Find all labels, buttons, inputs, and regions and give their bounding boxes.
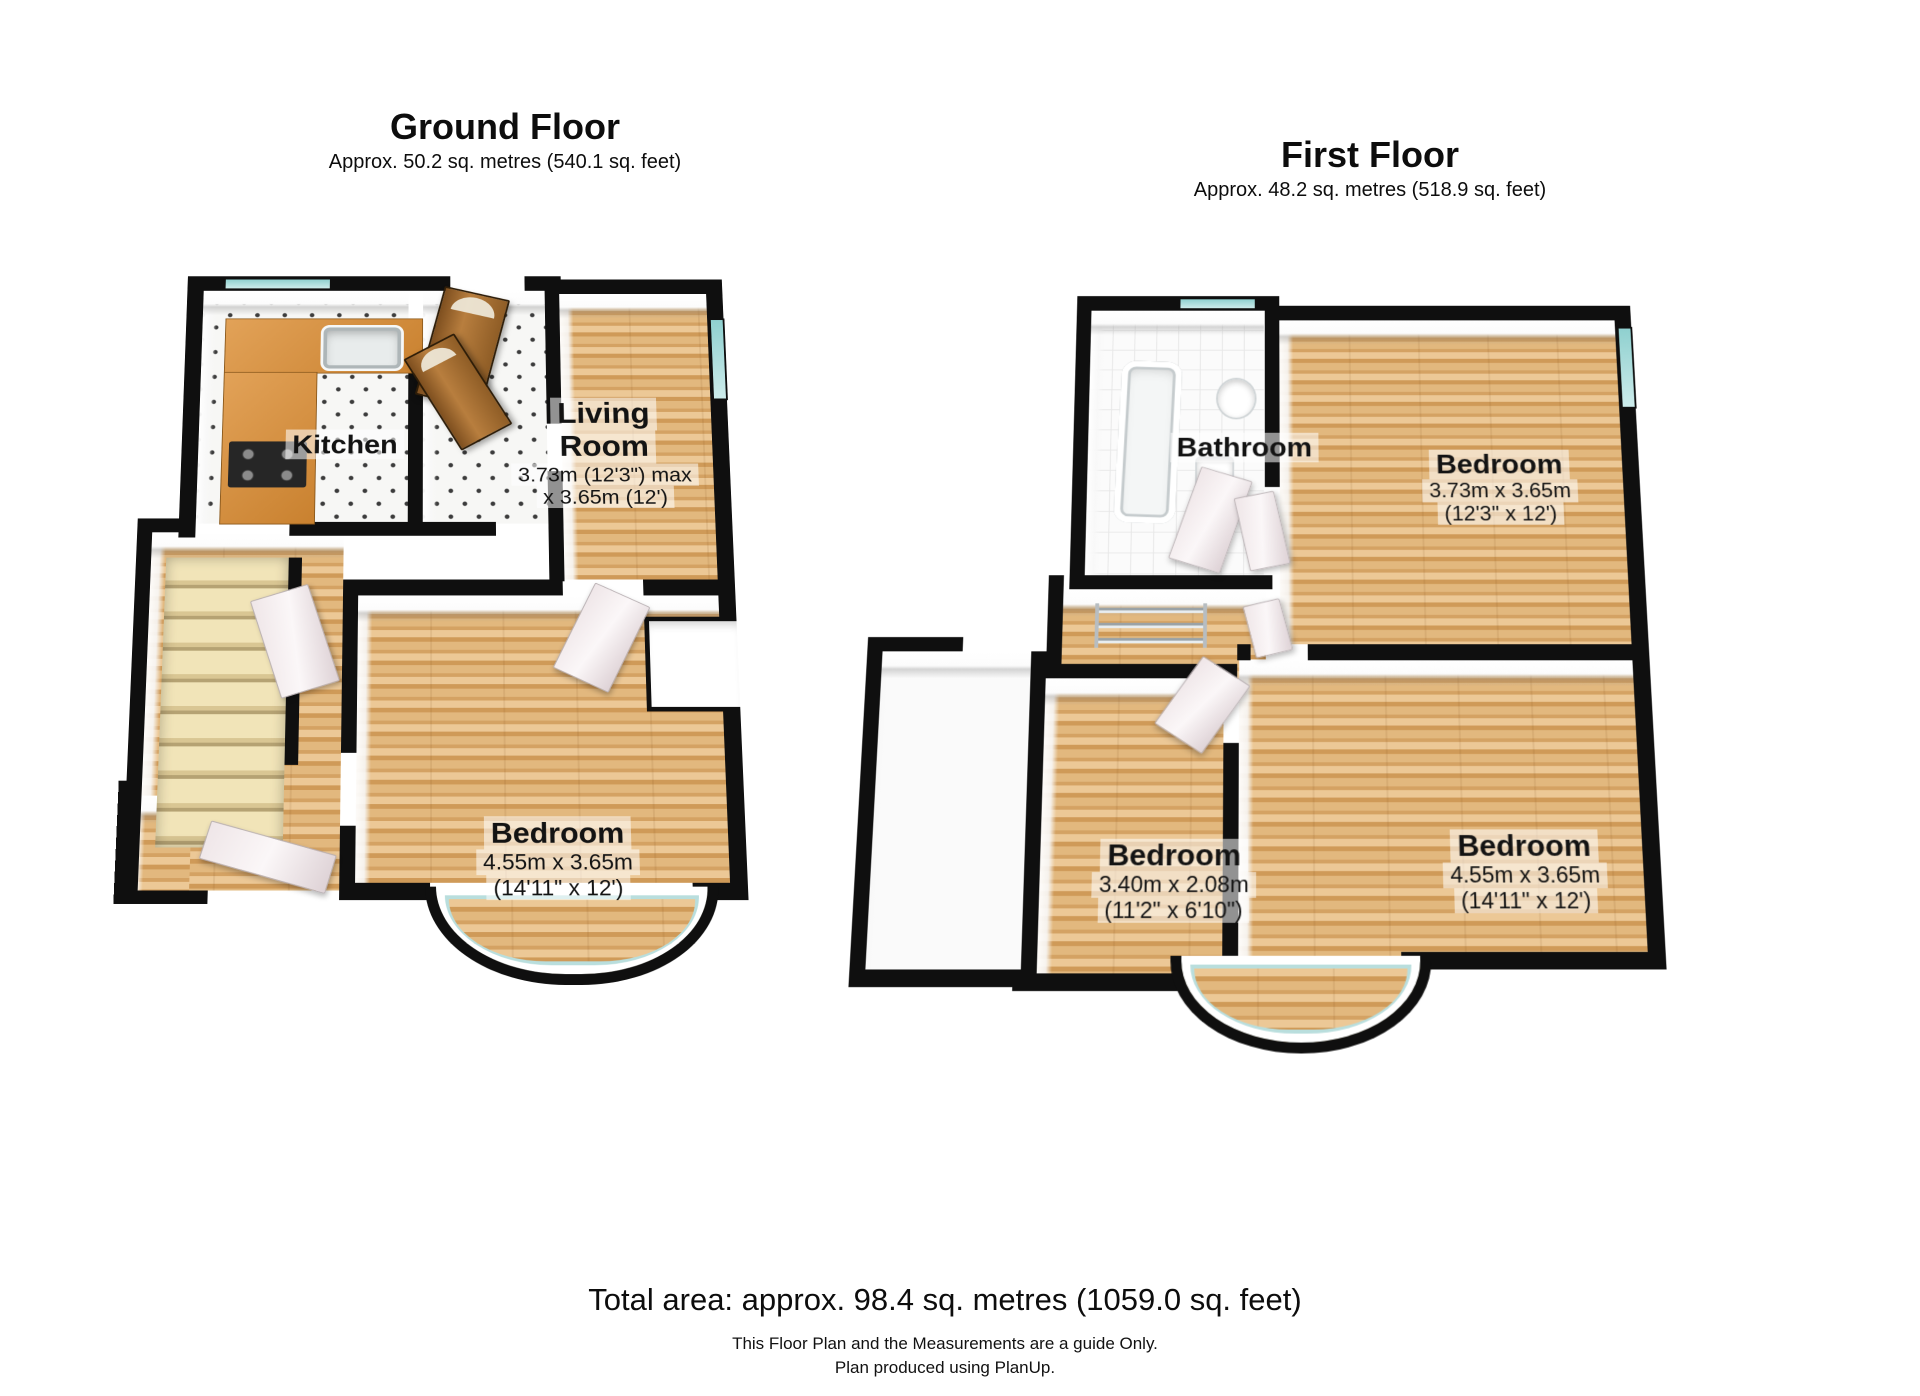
floorplan-page: Ground Floor Approx. 50.2 sq. metres (54… (0, 0, 1920, 1396)
bay-window-ground (425, 887, 722, 985)
bathroom-sink (1216, 378, 1257, 420)
rear-bedroom-name: Bedroom (1429, 450, 1569, 480)
rear-bedroom-dims-imperial: (12'3" x 12') (1438, 502, 1565, 525)
rear-bedroom-dims-metric: 3.73m x 3.65m (1422, 480, 1578, 502)
bathroom-window-glass (1179, 298, 1257, 310)
wall (643, 580, 734, 596)
small-bedroom-name: Bedroom (1100, 839, 1248, 872)
front-bedroom-name: Bedroom (1450, 829, 1598, 862)
small-bedroom-dims-imperial: (11'2" x 6'10") (1097, 897, 1249, 922)
ground-bedroom-dims-imperial: (14'11" x 12') (486, 875, 630, 900)
stairwell-floor (857, 651, 1031, 975)
kitchen-label-text: Kitchen (285, 430, 404, 460)
disclaimer-text: This Floor Plan and the Measurements are… (0, 1334, 1890, 1354)
bathroom-label: Bathroom (1147, 433, 1342, 463)
living-room-dims-line1: 3.73m (12'3") max (511, 463, 698, 485)
wall (113, 890, 207, 903)
wall (343, 580, 563, 596)
ground-floor-title: Ground Floor (255, 106, 755, 148)
bay-window-first (1169, 956, 1433, 1054)
ground-floor-plan: Kitchen Living Room 3.73m (12'3") max x … (110, 268, 758, 980)
front-bedroom-label: Bedroom 4.55m x 3.65m (14'11" x 12') (1399, 829, 1653, 913)
rear-bedroom-label: Bedroom 3.73m x 3.65m (12'3" x 12') (1390, 450, 1611, 525)
wall (1401, 952, 1666, 970)
wall (1069, 575, 1272, 589)
front-bedroom-dims-imperial: (14'11" x 12') (1454, 888, 1599, 913)
ground-bedroom-label: Bedroom 4.55m x 3.65m (14'11" x 12') (440, 816, 677, 900)
wall (1046, 575, 1064, 678)
towel-rail (1094, 603, 1207, 647)
ground-bedroom-dims-metric: 4.55m x 3.65m (476, 850, 640, 875)
living-room-dims-line2: x 3.65m (12') (536, 485, 674, 508)
wall (137, 518, 194, 532)
kitchen-label: Kitchen (252, 430, 438, 460)
living-room-label: Living Room 3.73m (12'3") max x 3.65m (1… (499, 398, 711, 508)
ground-bedroom-name: Bedroom (484, 816, 632, 849)
wall (341, 581, 358, 753)
living-room-name-line1: Living (550, 398, 656, 431)
living-room-window-glass (709, 318, 728, 400)
ground-floor-subtitle: Approx. 50.2 sq. metres (540.1 sq. feet) (255, 151, 755, 174)
wall (1275, 306, 1629, 321)
rear-bedroom-window-glass (1617, 327, 1637, 409)
chimney-recess (644, 617, 740, 712)
kitchen-sink (320, 325, 404, 371)
bathroom-label-text: Bathroom (1170, 433, 1319, 463)
wall (1308, 644, 1648, 660)
wall (339, 883, 430, 900)
wall (1237, 644, 1250, 660)
first-floor-plan: Bathroom Bedroom 3.73m x 3.65m (12'3" x … (840, 275, 1685, 995)
first-floor-subtitle: Approx. 48.2 sq. metres (518.9 sq. feet) (1120, 179, 1620, 202)
credit-text: Plan produced using PlanUp. (0, 1358, 1890, 1378)
wall (544, 279, 722, 294)
total-area-text: Total area: approx. 98.4 sq. metres (105… (0, 1282, 1890, 1318)
front-bedroom-dims-metric: 4.55m x 3.65m (1443, 863, 1607, 888)
wall (1012, 973, 1182, 991)
first-floor-title: First Floor (1120, 134, 1620, 176)
wall (848, 969, 1020, 987)
small-bedroom-label: Bedroom 3.40m x 2.08m (11'2" x 6'10") (1067, 839, 1280, 923)
kitchen-window-glass (224, 278, 332, 290)
small-bedroom-dims-metric: 3.40m x 2.08m (1092, 872, 1256, 897)
living-room-name-line2: Room (553, 430, 656, 463)
wall (430, 522, 496, 536)
